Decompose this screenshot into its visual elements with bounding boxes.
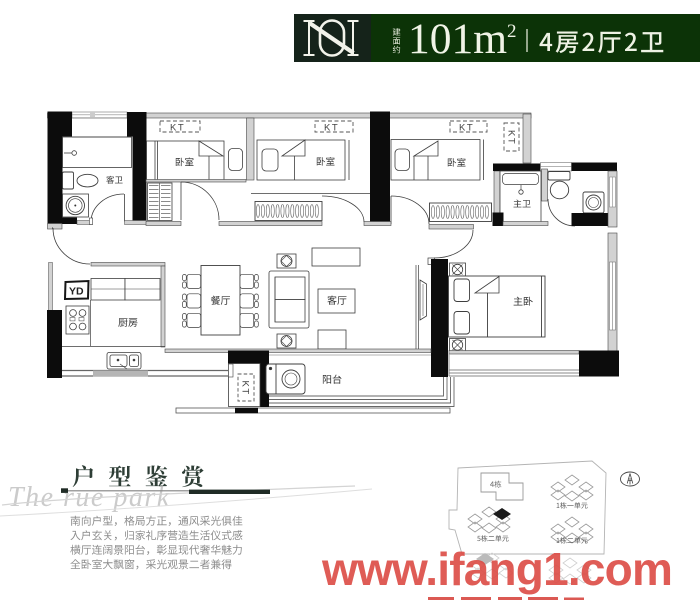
svg-text:The rue park: The rue park bbox=[8, 482, 171, 513]
svg-text:101m: 101m bbox=[408, 15, 507, 63]
svg-text:KT: KT bbox=[170, 123, 185, 134]
svg-text:KT: KT bbox=[506, 130, 517, 145]
svg-text:KT: KT bbox=[459, 123, 474, 134]
svg-text:KT: KT bbox=[240, 381, 251, 396]
svg-text:YD: YD bbox=[69, 286, 84, 298]
svg-text:KT: KT bbox=[324, 123, 339, 134]
svg-text:www.ifang1.com: www.ifang1.com bbox=[321, 543, 672, 595]
svg-text:2: 2 bbox=[507, 21, 517, 42]
